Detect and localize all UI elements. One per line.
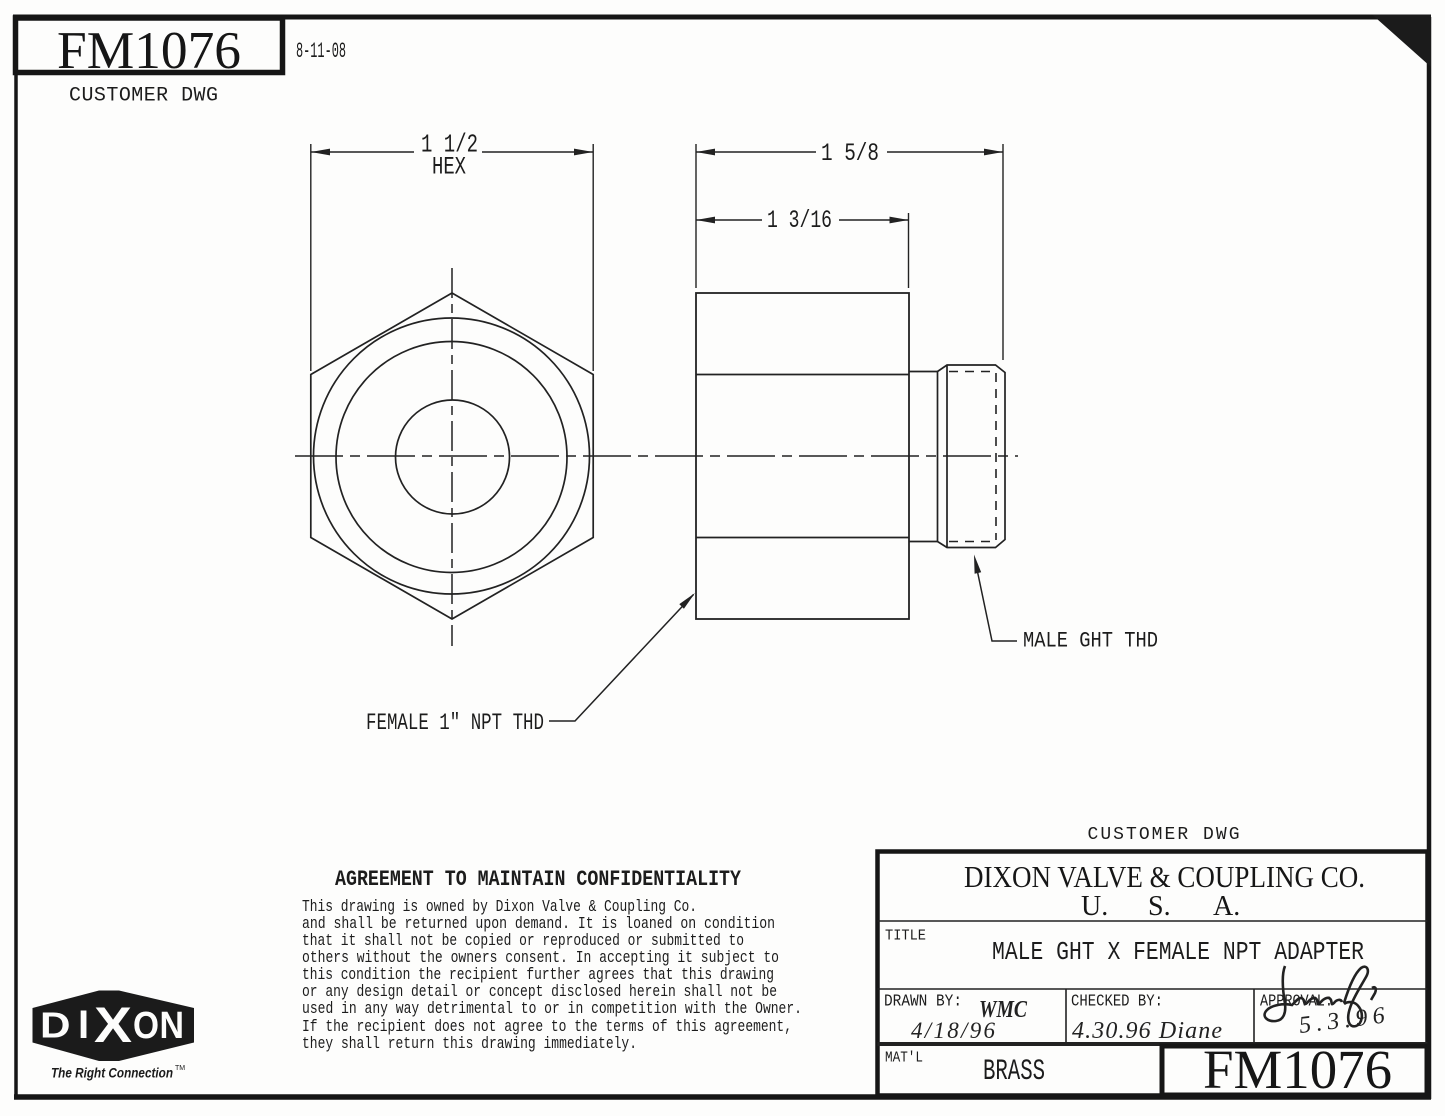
svg-text:8-11-08: 8-11-08 — [296, 39, 346, 64]
svg-text:1 5/8: 1 5/8 — [821, 139, 879, 168]
svg-text:FM1076: FM1076 — [57, 22, 241, 80]
svg-text:FEMALE 1" NPT THD: FEMALE 1" NPT THD — [366, 710, 544, 736]
svg-text:MAT'L: MAT'L — [885, 1050, 923, 1067]
svg-text:they shall return this drawing: they shall return this drawing immediate… — [302, 1034, 637, 1053]
svg-text:A.: A. — [1213, 891, 1240, 922]
svg-text:DRAWN BY:: DRAWN BY: — [884, 993, 962, 1012]
svg-text:CUSTOMER DWG: CUSTOMER DWG — [69, 85, 218, 108]
svg-text:CHECKED BY:: CHECKED BY: — [1071, 993, 1163, 1012]
svg-text:FM1076: FM1076 — [1203, 1039, 1392, 1100]
svg-text:TM: TM — [175, 1065, 185, 1072]
svg-text:DIXON VALVE & COUPLING CO.: DIXON VALVE & COUPLING CO. — [964, 859, 1365, 894]
svg-text:4/18/96: 4/18/96 — [911, 1018, 996, 1043]
svg-text:U.: U. — [1081, 891, 1108, 922]
svg-text:AGREEMENT TO MAINTAIN CONFIDEN: AGREEMENT TO MAINTAIN CONFIDENTIALITY — [335, 867, 742, 892]
svg-text:TITLE: TITLE — [885, 928, 926, 945]
svg-text:O: O — [133, 1005, 159, 1047]
svg-text:I: I — [78, 1003, 89, 1047]
svg-text:MALE GHT THD: MALE GHT THD — [1023, 629, 1158, 654]
svg-text:1 3/16: 1 3/16 — [767, 206, 832, 235]
svg-text:D: D — [40, 1005, 71, 1046]
svg-text:4.30.96 Diane: 4.30.96 Diane — [1072, 1018, 1222, 1044]
svg-text:BRASS: BRASS — [983, 1055, 1045, 1089]
svg-text:X: X — [94, 997, 132, 1053]
svg-text:N: N — [160, 1005, 185, 1047]
svg-text:used in any way detrimental to: used in any way detrimental to or in com… — [302, 999, 802, 1018]
svg-text:CUSTOMER DWG: CUSTOMER DWG — [1088, 825, 1240, 845]
svg-text:The Right Connection: The Right Connection — [51, 1066, 173, 1081]
svg-text:HEX: HEX — [432, 153, 466, 182]
svg-text:S.: S. — [1148, 891, 1171, 922]
svg-text:MALE GHT X FEMALE NPT ADAPTER: MALE GHT X FEMALE NPT ADAPTER — [992, 937, 1364, 967]
